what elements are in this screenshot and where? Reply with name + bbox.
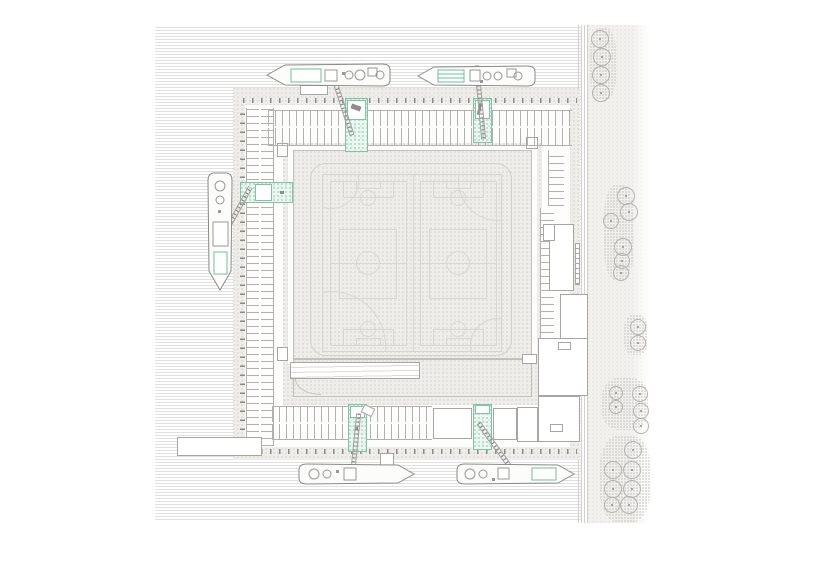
tree-trunk-dot [620, 272, 622, 274]
tree-trunk-dot [612, 488, 614, 490]
tree-trunk-dot [637, 342, 639, 344]
tree-trunk-dot [640, 425, 642, 427]
building-service-block-a-core [558, 342, 571, 350]
tree [593, 48, 611, 66]
field-marking [446, 338, 471, 346]
tree [620, 203, 638, 221]
tree [603, 213, 619, 229]
tree-trunk-dot [615, 392, 617, 394]
site-plan-canvas [0, 0, 818, 578]
moored-boat [206, 170, 234, 292]
tree [592, 84, 610, 102]
field-marking [446, 251, 470, 275]
tree [609, 386, 623, 400]
tree-trunk-dot [612, 469, 614, 471]
boat-hull [296, 462, 416, 486]
building-east-hall-annex [543, 224, 555, 241]
tree [620, 496, 638, 514]
tree-trunk-dot [615, 406, 617, 408]
parking-row [548, 150, 564, 206]
tree [613, 265, 629, 281]
tree [632, 386, 648, 402]
quay-bollards [243, 449, 577, 454]
planter-structure [255, 184, 272, 201]
boat-hull [206, 170, 234, 292]
tree-trunk-dot [628, 211, 630, 213]
moored-boat [296, 462, 416, 486]
field-marking [356, 181, 381, 189]
tree-trunk-dot [640, 410, 642, 412]
building-south-shed-1 [433, 408, 472, 439]
parking-row [268, 128, 572, 146]
tree-trunk-dot [621, 260, 623, 262]
deck-corner-pavilion [522, 354, 537, 364]
tree [623, 461, 641, 479]
tree-trunk-dot [600, 74, 602, 76]
field-marking [450, 321, 466, 337]
tree [604, 497, 620, 513]
tree [630, 319, 646, 335]
building-grandstand [290, 362, 420, 379]
boat-hull [416, 64, 538, 88]
tree [623, 480, 641, 498]
boat-hull [265, 62, 393, 88]
parking-row [261, 108, 274, 446]
building-service-block-b-core [550, 424, 563, 432]
boat-hull [454, 462, 576, 486]
quay-bollards [240, 106, 245, 448]
field-marking [356, 251, 380, 275]
tree [633, 403, 649, 419]
tree-trunk-dot [611, 504, 613, 506]
tree [591, 30, 609, 48]
tree-trunk-dot [628, 504, 630, 506]
tree-trunk-dot [637, 326, 639, 328]
tree-trunk-dot [600, 92, 602, 94]
building-south-shed-2 [493, 408, 517, 440]
tree-trunk-dot [601, 56, 603, 58]
moored-boat [416, 64, 538, 88]
tree [592, 66, 610, 84]
field-marking [360, 190, 376, 206]
sports-fields [322, 174, 502, 352]
tree [604, 480, 622, 498]
tree-trunk-dot [622, 246, 624, 248]
tree [633, 418, 649, 434]
site-object [280, 191, 284, 194]
field-marking [413, 175, 414, 352]
tree-trunk-dot [631, 469, 633, 471]
tree-trunk-dot [610, 220, 612, 222]
tree [604, 461, 622, 479]
building-east-hall-stairs [575, 243, 580, 285]
building-south-shed-3 [517, 407, 538, 442]
building-west-pier [177, 437, 262, 456]
planter-structure [475, 405, 490, 414]
parking-row [246, 108, 259, 446]
moored-boat [454, 462, 576, 486]
tree-trunk-dot [632, 449, 634, 451]
tree [624, 441, 642, 459]
quay-bollards [243, 98, 577, 103]
moored-boat [265, 62, 393, 88]
tree-trunk-dot [631, 488, 633, 490]
tree-trunk-dot [599, 38, 601, 40]
deck-corner-pavilion [277, 347, 288, 361]
tree [630, 335, 646, 351]
tree-trunk-dot [639, 393, 641, 395]
parking-row [268, 110, 572, 126]
building-service-block-b [538, 396, 580, 442]
tree [609, 400, 623, 414]
building-east-pavilion [560, 294, 588, 341]
tree-trunk-dot [625, 195, 627, 197]
